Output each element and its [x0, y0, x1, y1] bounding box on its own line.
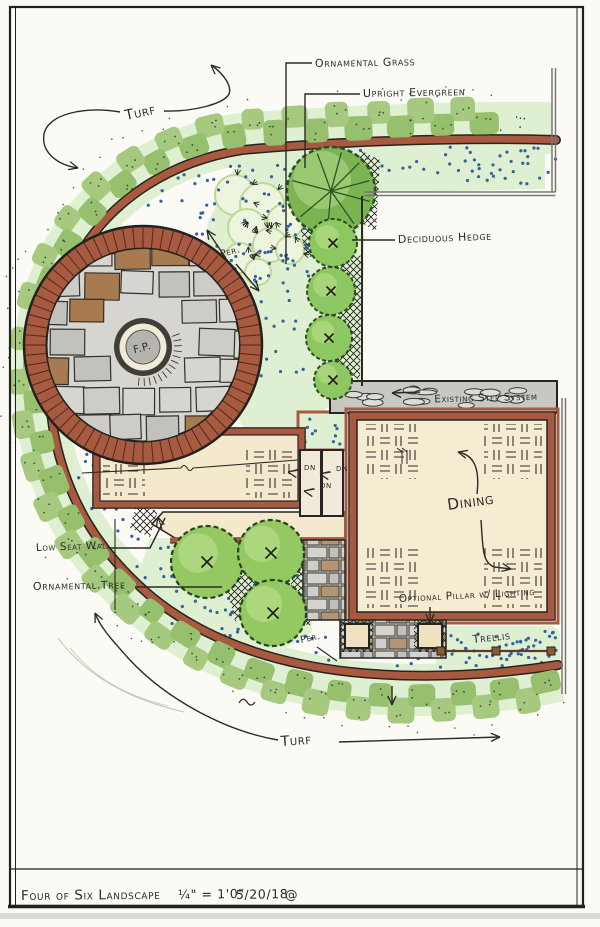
label-deciduous-hedge: Deciduous Hedge: [398, 230, 492, 246]
landscape-plan-drawing: Ornamental Grass Upright Evergreen Decid…: [0, 0, 600, 927]
label-upright-evergreen: Upright Evergreen: [363, 85, 466, 100]
label-turf-top: Turf: [123, 102, 158, 124]
label-down-2: DN: [336, 465, 348, 473]
label-down-1: DN: [304, 464, 316, 472]
title-date: 5/20/18: [236, 886, 289, 902]
title-mark: @: [285, 887, 298, 902]
pencil-arc: [70, 648, 168, 706]
label-turf-bottom: Turf: [279, 732, 312, 750]
title-scale: ¼" = 1'0": [178, 886, 245, 902]
label-down-3: DN: [320, 482, 332, 490]
label-ornamental-grass: Ornamental Grass: [315, 55, 416, 70]
title-block: Four of Six Landscape ¼" = 1'0" 5/20/18 …: [21, 886, 298, 904]
plan-artwork: [0, 7, 600, 919]
title-project: Four of Six Landscape: [21, 887, 161, 904]
paper-shadow: [0, 913, 600, 919]
landscape-plan-sheet: Ornamental Grass Upright Evergreen Decid…: [0, 0, 600, 927]
label-ornamental-tree: Ornamental Tree: [33, 578, 126, 593]
